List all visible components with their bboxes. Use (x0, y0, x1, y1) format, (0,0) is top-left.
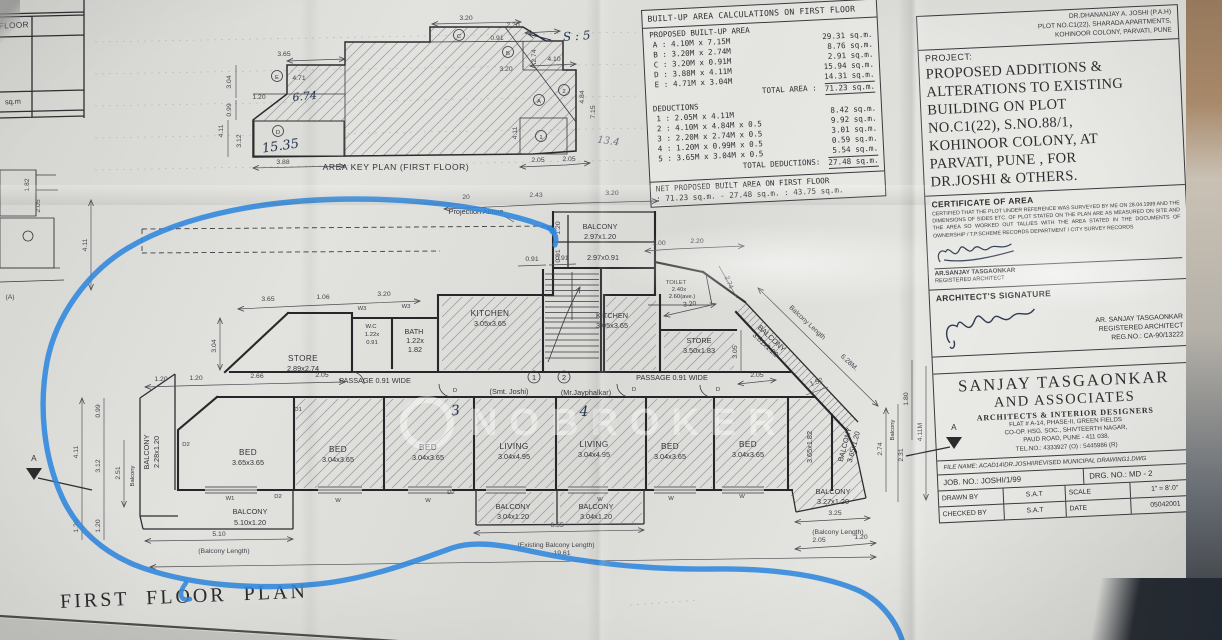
text-el: 2.43 (529, 192, 542, 199)
g-el: 4.11 (73, 445, 80, 458)
text-el: 2.74 (531, 49, 538, 62)
text-el: W (425, 498, 431, 504)
text-el: 3.04 (211, 339, 218, 352)
text-el: D2 (274, 494, 282, 500)
photo-background-edge (1186, 0, 1222, 640)
paper-bottom-edge (0, 616, 445, 640)
text-el: 1.22x (365, 332, 379, 338)
text-el: W3 (402, 304, 412, 310)
g-el: 3.12 (95, 459, 102, 472)
g-el: 4.11M (917, 422, 924, 441)
text-el: 2.74 (877, 442, 884, 455)
text-el: 2.97x0.91 (587, 253, 619, 262)
text-el: 6.28M. (839, 353, 859, 372)
g-el: Balcony (130, 465, 136, 486)
text-el: 2 (562, 89, 565, 95)
text-el: W (597, 497, 603, 503)
text-el: 4.11 (218, 124, 225, 137)
rect-el (296, 399, 383, 488)
text-el: PASSAGE 0.91 WIDE (636, 373, 708, 382)
text-el: 4.11 (73, 445, 80, 458)
g-el: 3.04 (211, 339, 218, 352)
g-el: 1.80 (903, 392, 910, 405)
watermark-text: NOBROKER (470, 402, 788, 445)
text-el: KITCHEN (471, 309, 510, 318)
path-el (630, 600, 700, 605)
g-el: 3.12 (236, 134, 243, 147)
text-el: 1.20 (95, 519, 102, 532)
text-el: 4.84 (579, 90, 586, 103)
text-el: BED (239, 448, 257, 457)
text-el: PASSAGE 0.91 WIDE (339, 376, 411, 385)
text-el: 1.22x (406, 336, 424, 345)
text-el: 3.20 (377, 291, 390, 298)
text-el: 3.04x3.65 (654, 452, 686, 461)
text-el: 3.27x1.20 (817, 497, 849, 506)
text-el: D (453, 388, 457, 394)
text-el: 3.65x1.82 (805, 431, 814, 463)
text-el: A (951, 423, 957, 432)
path-el (287, 59, 345, 61)
g-el: 2.31 (898, 448, 905, 461)
text-el: D2 (447, 490, 455, 496)
text-el: 3.05x3.65 (596, 321, 628, 330)
text-el: 3.04x3.65 (732, 450, 764, 459)
text-el: Balcony (130, 465, 136, 486)
text-el: 0.91 (490, 35, 503, 42)
g-el: 3.05 (732, 345, 739, 358)
text-el: BALCONY (496, 502, 531, 511)
g-el (654, 486, 696, 493)
text-el: B (506, 51, 510, 57)
path-el (145, 539, 293, 541)
g-el (408, 486, 452, 493)
text-el: W (668, 496, 674, 502)
text-el: 6.74 (292, 89, 318, 104)
rect-el (0, 170, 36, 216)
text-el: 2.05 (35, 199, 42, 212)
path-el (0, 170, 64, 282)
text-el: A (31, 454, 37, 463)
blueprint-drawing: FLOOR sq.m 1.82 2.05 4.11 (A) E 4.71 D C… (0, 0, 1222, 640)
text-el: 2.05 (562, 156, 575, 163)
text-el: 3.25 (828, 510, 841, 517)
g-el (486, 486, 526, 493)
frag-sqm-label: sq.m (5, 97, 21, 107)
text-el: BATH (405, 327, 424, 336)
text-el: D (276, 130, 280, 136)
text-el: 1.00 (652, 240, 665, 247)
text-el: Balcony (890, 419, 896, 440)
text-el: 4.11 (512, 126, 519, 139)
text-el: 2.66 (250, 373, 263, 380)
text-el: 1.20 (854, 534, 867, 541)
g-el: 0.91 (555, 249, 562, 262)
g-el: 2.74 (877, 442, 884, 455)
text-el: 2.31 (898, 448, 905, 461)
text-el: W (739, 494, 745, 500)
text-el: BALCONY (579, 502, 614, 511)
text-el: BALCONY (142, 434, 151, 469)
text-el: 2 (562, 373, 566, 382)
first-floor-plan-drawing: Projection Above (26, 190, 962, 567)
text-el: 3.65x3.65 (232, 458, 264, 467)
text-el: 3.65 (261, 296, 274, 303)
text-el: TOILET (666, 280, 687, 286)
text-el: 3.20 (605, 190, 618, 197)
text-el: 2.05 (315, 372, 328, 379)
text-el: 3.50x1.83 (683, 346, 715, 355)
text-el: (Smt. Joshi) (490, 387, 529, 396)
text-el: 2.20 (506, 22, 519, 29)
key-plan-caption: AREA KEY PLAN (FIRST FLOOR) (323, 162, 470, 172)
text-el: 3.20 (499, 66, 512, 73)
text-el: BALCONY (816, 487, 851, 496)
text-el: 3.04x4.95 (578, 450, 610, 459)
text-el: 2.40x (672, 287, 686, 293)
text-el: BALCONY (233, 507, 268, 516)
watermark-logo-icon (400, 396, 454, 450)
text-el: BALCONY (583, 222, 618, 231)
text-el: 3.04x1.20 (580, 512, 612, 521)
path-el (548, 287, 580, 362)
text-el: 2.89x2.74 (287, 364, 319, 373)
text-el: D1 (294, 407, 302, 413)
watermark: NOBROKER (400, 396, 788, 450)
photo-background-corner (1030, 578, 1222, 640)
path-el (545, 328, 599, 358)
g-el: 3.65x1.82 (805, 431, 814, 463)
text-el: 4.10 (547, 56, 560, 63)
text-el: 1.82 (24, 178, 31, 191)
g-el: 4.11 (218, 124, 225, 137)
text-el: 20 (462, 194, 470, 201)
text-el: W1 (226, 496, 235, 502)
text-el: 3.20 (683, 300, 697, 308)
g-el: BALCONY2.28x1.20 (142, 434, 161, 469)
text-el: 3.12 (236, 134, 243, 147)
g-el: 4.84 (579, 90, 586, 103)
text-el: 5.10 (212, 531, 225, 538)
path-el (38, 478, 92, 490)
text-el: 0.91 (555, 249, 562, 262)
g-el: 2.05 (35, 199, 42, 212)
staircase (543, 272, 601, 362)
text-el: 4.11M (917, 422, 924, 441)
g-el: 1.82 (24, 178, 31, 191)
text-el: 2.97x1.20 (584, 232, 616, 241)
text-el: BED (329, 445, 347, 454)
g-el: 4.11 (512, 126, 519, 139)
photo-background-corner (0, 0, 20, 46)
text-el: W3 (358, 306, 368, 312)
g-el: 2.51 (115, 466, 122, 479)
left-drawing-fragment: 1.82 2.05 4.11 (A) (0, 170, 91, 301)
path-el (150, 557, 876, 567)
text-el: 2.28x1.20 (152, 436, 161, 468)
text-el: 2.05 (531, 157, 544, 164)
path-el (181, 583, 190, 600)
g-el: 4.11 (82, 238, 89, 251)
text-el: 2.60(ave.) (669, 294, 696, 300)
g-el: 1.20 (95, 519, 102, 532)
text-el: 3.04x3.65 (322, 455, 354, 464)
g-el: 7.15 (590, 105, 597, 118)
text-el: 3.12 (95, 459, 102, 472)
text-el: 3.04x4.95 (498, 452, 530, 461)
text-el: D (632, 387, 636, 393)
rect-el (0, 218, 54, 268)
rect-el (442, 297, 541, 370)
text-el: 0.99 (226, 103, 233, 116)
g-el: 0.99 (95, 404, 102, 417)
text-el: 13.4 (597, 135, 621, 149)
text-el: 1.80 (903, 392, 910, 405)
g-el (568, 486, 608, 493)
text-el: STORE (686, 336, 711, 345)
text-el: 3.20 (459, 15, 472, 22)
text-el: 1.20 (154, 376, 167, 383)
path-el (906, 447, 950, 456)
text-el: C (457, 34, 462, 40)
g-el: 0.99 (226, 103, 233, 116)
path-el (474, 530, 644, 533)
text-el: 3.04 (226, 75, 233, 88)
text-el: 0.99 (95, 404, 102, 417)
text-el: 7.15 (590, 105, 597, 118)
circle-el (23, 231, 33, 241)
text-el: W (335, 498, 341, 504)
text-el: 3.04x3.65 (412, 453, 444, 462)
text-el: S : 5 (563, 28, 591, 44)
text-el: 1.20 (189, 375, 202, 382)
text-el: 2.05 (750, 372, 763, 379)
text-el: (Balcony Length) (198, 548, 249, 555)
text-el: 2.51 (115, 466, 122, 479)
text-el: 1 (532, 373, 536, 382)
path-el (142, 226, 552, 253)
text-el: 4.71 (292, 75, 305, 82)
g-el (205, 486, 257, 493)
text-el: KITCHEN (596, 311, 628, 320)
text-el: 6.55 (550, 522, 563, 529)
text-el: 0.91 (525, 256, 538, 263)
text-el: 3.65 (277, 51, 290, 58)
g-el: 3.04 (226, 75, 233, 88)
text-el: 1.82 (408, 345, 422, 354)
path-el (795, 543, 876, 549)
path-el (795, 518, 870, 522)
text-el: (A) (5, 294, 14, 301)
path-el (143, 490, 293, 529)
text-el: W.C (365, 324, 377, 330)
g-el: 2.74 (531, 49, 538, 62)
text-el: 1.06 (316, 294, 329, 301)
text-el: 3.88 (276, 159, 289, 166)
text-el: 3.05x3.65 (474, 319, 506, 328)
text-el: 3.04x1.20 (497, 512, 529, 521)
path-el (518, 264, 576, 266)
g-el: 6.28M. (839, 353, 859, 372)
text-el: 2.05 (812, 537, 825, 544)
text-el: 3.05 (732, 345, 739, 358)
rect-el (606, 297, 656, 370)
text-el: 1.20 (252, 94, 265, 101)
text-el: 1 (539, 135, 542, 141)
text-el: 4.11 (82, 238, 89, 251)
g-el (318, 486, 362, 493)
text-el: (Existing Balcony Length) (517, 542, 594, 549)
text-el: 5.10x1.20 (234, 518, 266, 527)
text-el: 2.20 (690, 238, 703, 245)
g-el (722, 486, 764, 493)
path-el (738, 380, 776, 384)
text-el: D2 (182, 442, 190, 448)
text-el: 0.91 (366, 340, 377, 346)
text-el: A (537, 99, 541, 105)
g-el: Balcony (890, 419, 896, 440)
text-el: D (716, 387, 720, 393)
text-el: E (275, 75, 279, 81)
text-el: STORE (288, 354, 318, 363)
photographed-blueprint: FLOOR sq.m 1.82 2.05 4.11 (A) E 4.71 D C… (0, 0, 1222, 640)
